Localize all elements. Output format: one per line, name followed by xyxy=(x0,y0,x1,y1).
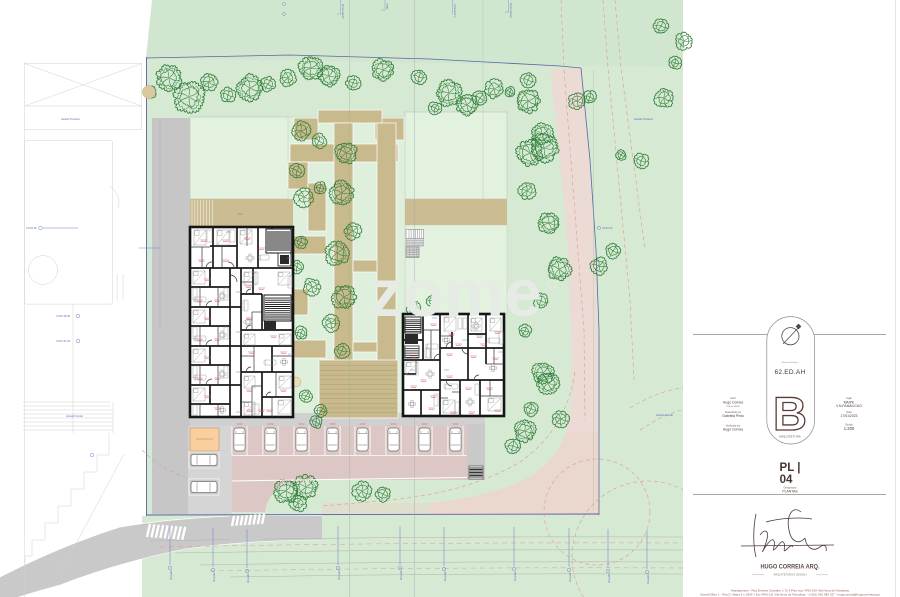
svg-text:COTA 24: COTA 24 xyxy=(602,226,613,230)
svg-text:HUGO CORREIA ARQ.: HUGO CORREIA ARQ. xyxy=(761,564,820,571)
svg-text:PL |: PL | xyxy=(780,462,801,474)
svg-text:04: 04 xyxy=(780,474,793,486)
svg-text:Via publ: Via publ xyxy=(212,572,216,582)
svg-text:zome: zome xyxy=(369,256,542,331)
svg-text:ARQUITETURA: ARQUITETURA xyxy=(779,435,801,439)
svg-text:Via publ: Via publ xyxy=(337,570,341,580)
svg-text:B: B xyxy=(773,387,807,440)
svg-text:Store&Office 1 - Rua D. Maria: Store&Office 1 - Rua D. Maria II n 1845 … xyxy=(700,593,880,597)
svg-text:Alcado Posterior: Alcado Posterior xyxy=(61,117,80,121)
svg-text:Via publ: Via publ xyxy=(607,573,611,583)
svg-text:Gabriela Pinto: Gabriela Pinto xyxy=(722,414,744,418)
svg-text:ARQUITETURA E DESIGN: ARQUITETURA E DESIGN xyxy=(774,573,807,576)
svg-text:Alcado Frontal: Alcado Frontal xyxy=(66,414,83,418)
svg-text:Alcado lateral: Alcado lateral xyxy=(509,3,512,18)
svg-text:Via publ: Via publ xyxy=(399,570,403,580)
svg-text:Cota terreno: Cota terreno xyxy=(453,4,456,18)
svg-text:COTA 96.50: COTA 96.50 xyxy=(56,314,71,318)
svg-text:Alcado lateral: Alcado lateral xyxy=(341,4,344,19)
svg-text:O.A. N 16146: O.A. N 16146 xyxy=(726,405,740,408)
svg-text:Via publ: Via publ xyxy=(443,571,447,581)
svg-text:COTA 98: COTA 98 xyxy=(26,226,37,230)
svg-text:Alcado Posterior: Alcado Posterior xyxy=(634,117,653,121)
svg-text:Limite: Limite xyxy=(386,3,389,10)
svg-text:Via publ: Via publ xyxy=(646,574,650,584)
svg-text:Via publ: Via publ xyxy=(246,573,250,583)
svg-text:Nome do Projeto: Nome do Projeto xyxy=(782,361,799,364)
svg-text:COTA 97.20: COTA 97.20 xyxy=(56,339,71,343)
svg-text:V.N.FAMALICAO: V.N.FAMALICAO xyxy=(836,404,862,408)
svg-text:Via publ: Via publ xyxy=(169,570,173,580)
svg-text:62.ED.AH: 62.ED.AH xyxy=(775,369,806,376)
svg-text:PLANTAS: PLANTAS xyxy=(782,490,798,494)
svg-text:Alcado Frontal: Alcado Frontal xyxy=(656,413,673,417)
svg-text:Via publ: Via publ xyxy=(513,571,517,581)
svg-text:1:200: 1:200 xyxy=(844,426,855,431)
svg-text:17/01/2023: 17/01/2023 xyxy=(841,414,858,418)
svg-text:Hugo Correia: Hugo Correia xyxy=(723,428,743,432)
svg-text:Hugo Correia: Hugo Correia xyxy=(723,401,743,405)
svg-text:TSU: TSU xyxy=(237,212,243,216)
svg-text:Via publ: Via publ xyxy=(568,572,572,582)
